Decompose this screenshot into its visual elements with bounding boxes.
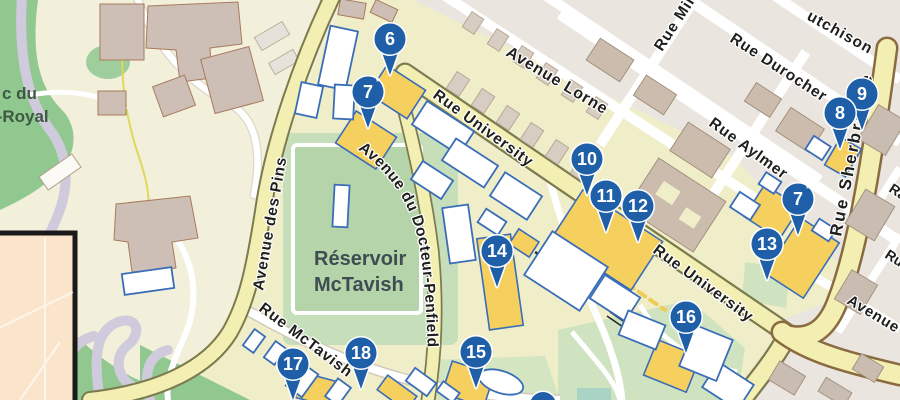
marker-number: 11 bbox=[596, 186, 615, 206]
marker-sup: * bbox=[806, 183, 811, 195]
marker-number: 7 bbox=[363, 82, 373, 102]
map-canvas[interactable]: Rue UniversityRue UniversityAvenue Lorne… bbox=[0, 0, 900, 400]
inset-map bbox=[0, 233, 75, 400]
region-label: McTavish bbox=[314, 274, 404, 296]
marker-number: 8 bbox=[835, 103, 845, 123]
marker-number: 13 bbox=[757, 234, 777, 254]
marker-number: 6 bbox=[385, 29, 395, 49]
region-label: t-Royal bbox=[0, 107, 49, 126]
marker-number: 15 bbox=[466, 342, 486, 362]
marker-number: 12 bbox=[628, 196, 648, 216]
region-label: Réservoir bbox=[314, 248, 406, 270]
marker-number: 9 bbox=[857, 84, 867, 104]
marker-sup: * bbox=[376, 76, 381, 88]
marker-number: 10 bbox=[577, 149, 597, 169]
marker-number: 16 bbox=[676, 307, 696, 327]
marker-number: 18 bbox=[351, 343, 371, 363]
marker-number: 7 bbox=[793, 189, 803, 209]
campus-map[interactable]: Rue UniversityRue UniversityAvenue Lorne… bbox=[0, 0, 900, 400]
marker-number: 17 bbox=[283, 354, 303, 374]
region-label: c du bbox=[2, 84, 37, 103]
marker-number: 14 bbox=[487, 241, 507, 261]
